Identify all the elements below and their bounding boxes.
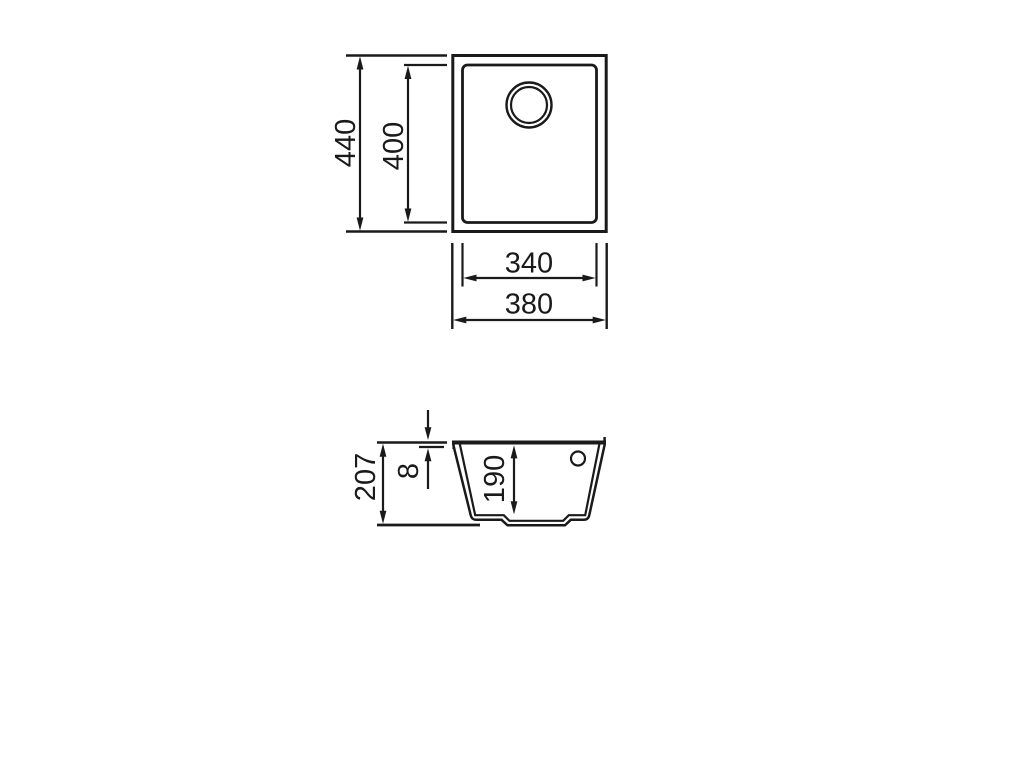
dim-400-label: 400 <box>378 122 410 170</box>
section-view: 207 8 190 <box>350 410 606 525</box>
arrow-down-icon <box>405 209 412 222</box>
dim-440-label: 440 <box>330 119 362 167</box>
arrow-left-icon <box>463 275 476 282</box>
sink-technical-drawing: 440 400 340 <box>0 0 1024 768</box>
dim-380-label: 380 <box>505 289 553 321</box>
arrow-down-icon <box>425 427 432 440</box>
section-rim-bar <box>452 441 606 445</box>
drawing-canvas: 440 400 340 <box>0 0 1024 768</box>
arrow-up-icon <box>511 445 518 458</box>
arrow-up-icon <box>405 66 412 79</box>
dim-340-label: 340 <box>505 248 553 280</box>
arrow-left-icon <box>453 317 466 324</box>
dim-rim-thickness: 8 <box>393 410 444 489</box>
arrow-up-icon <box>357 56 364 69</box>
dim-overall-height: 207 <box>350 443 480 526</box>
arrow-up-icon <box>425 448 432 461</box>
dim-bowl-depth: 190 <box>479 445 517 514</box>
arrow-down-icon <box>511 501 518 514</box>
dim-inner-height: 400 <box>378 65 447 223</box>
arrow-right-icon <box>593 317 606 324</box>
overflow-hole-circle <box>571 452 585 466</box>
section-bowl-outer-contour <box>453 444 605 525</box>
dim-190-label: 190 <box>479 455 511 503</box>
dim-207-label: 207 <box>350 453 382 501</box>
dim-8-label: 8 <box>393 463 425 479</box>
top-view: 440 400 340 <box>330 56 607 330</box>
dim-inner-width: 340 <box>463 243 597 287</box>
arrow-down-icon <box>357 218 364 231</box>
arrow-right-icon <box>583 275 596 282</box>
arrow-down-icon <box>380 511 387 524</box>
